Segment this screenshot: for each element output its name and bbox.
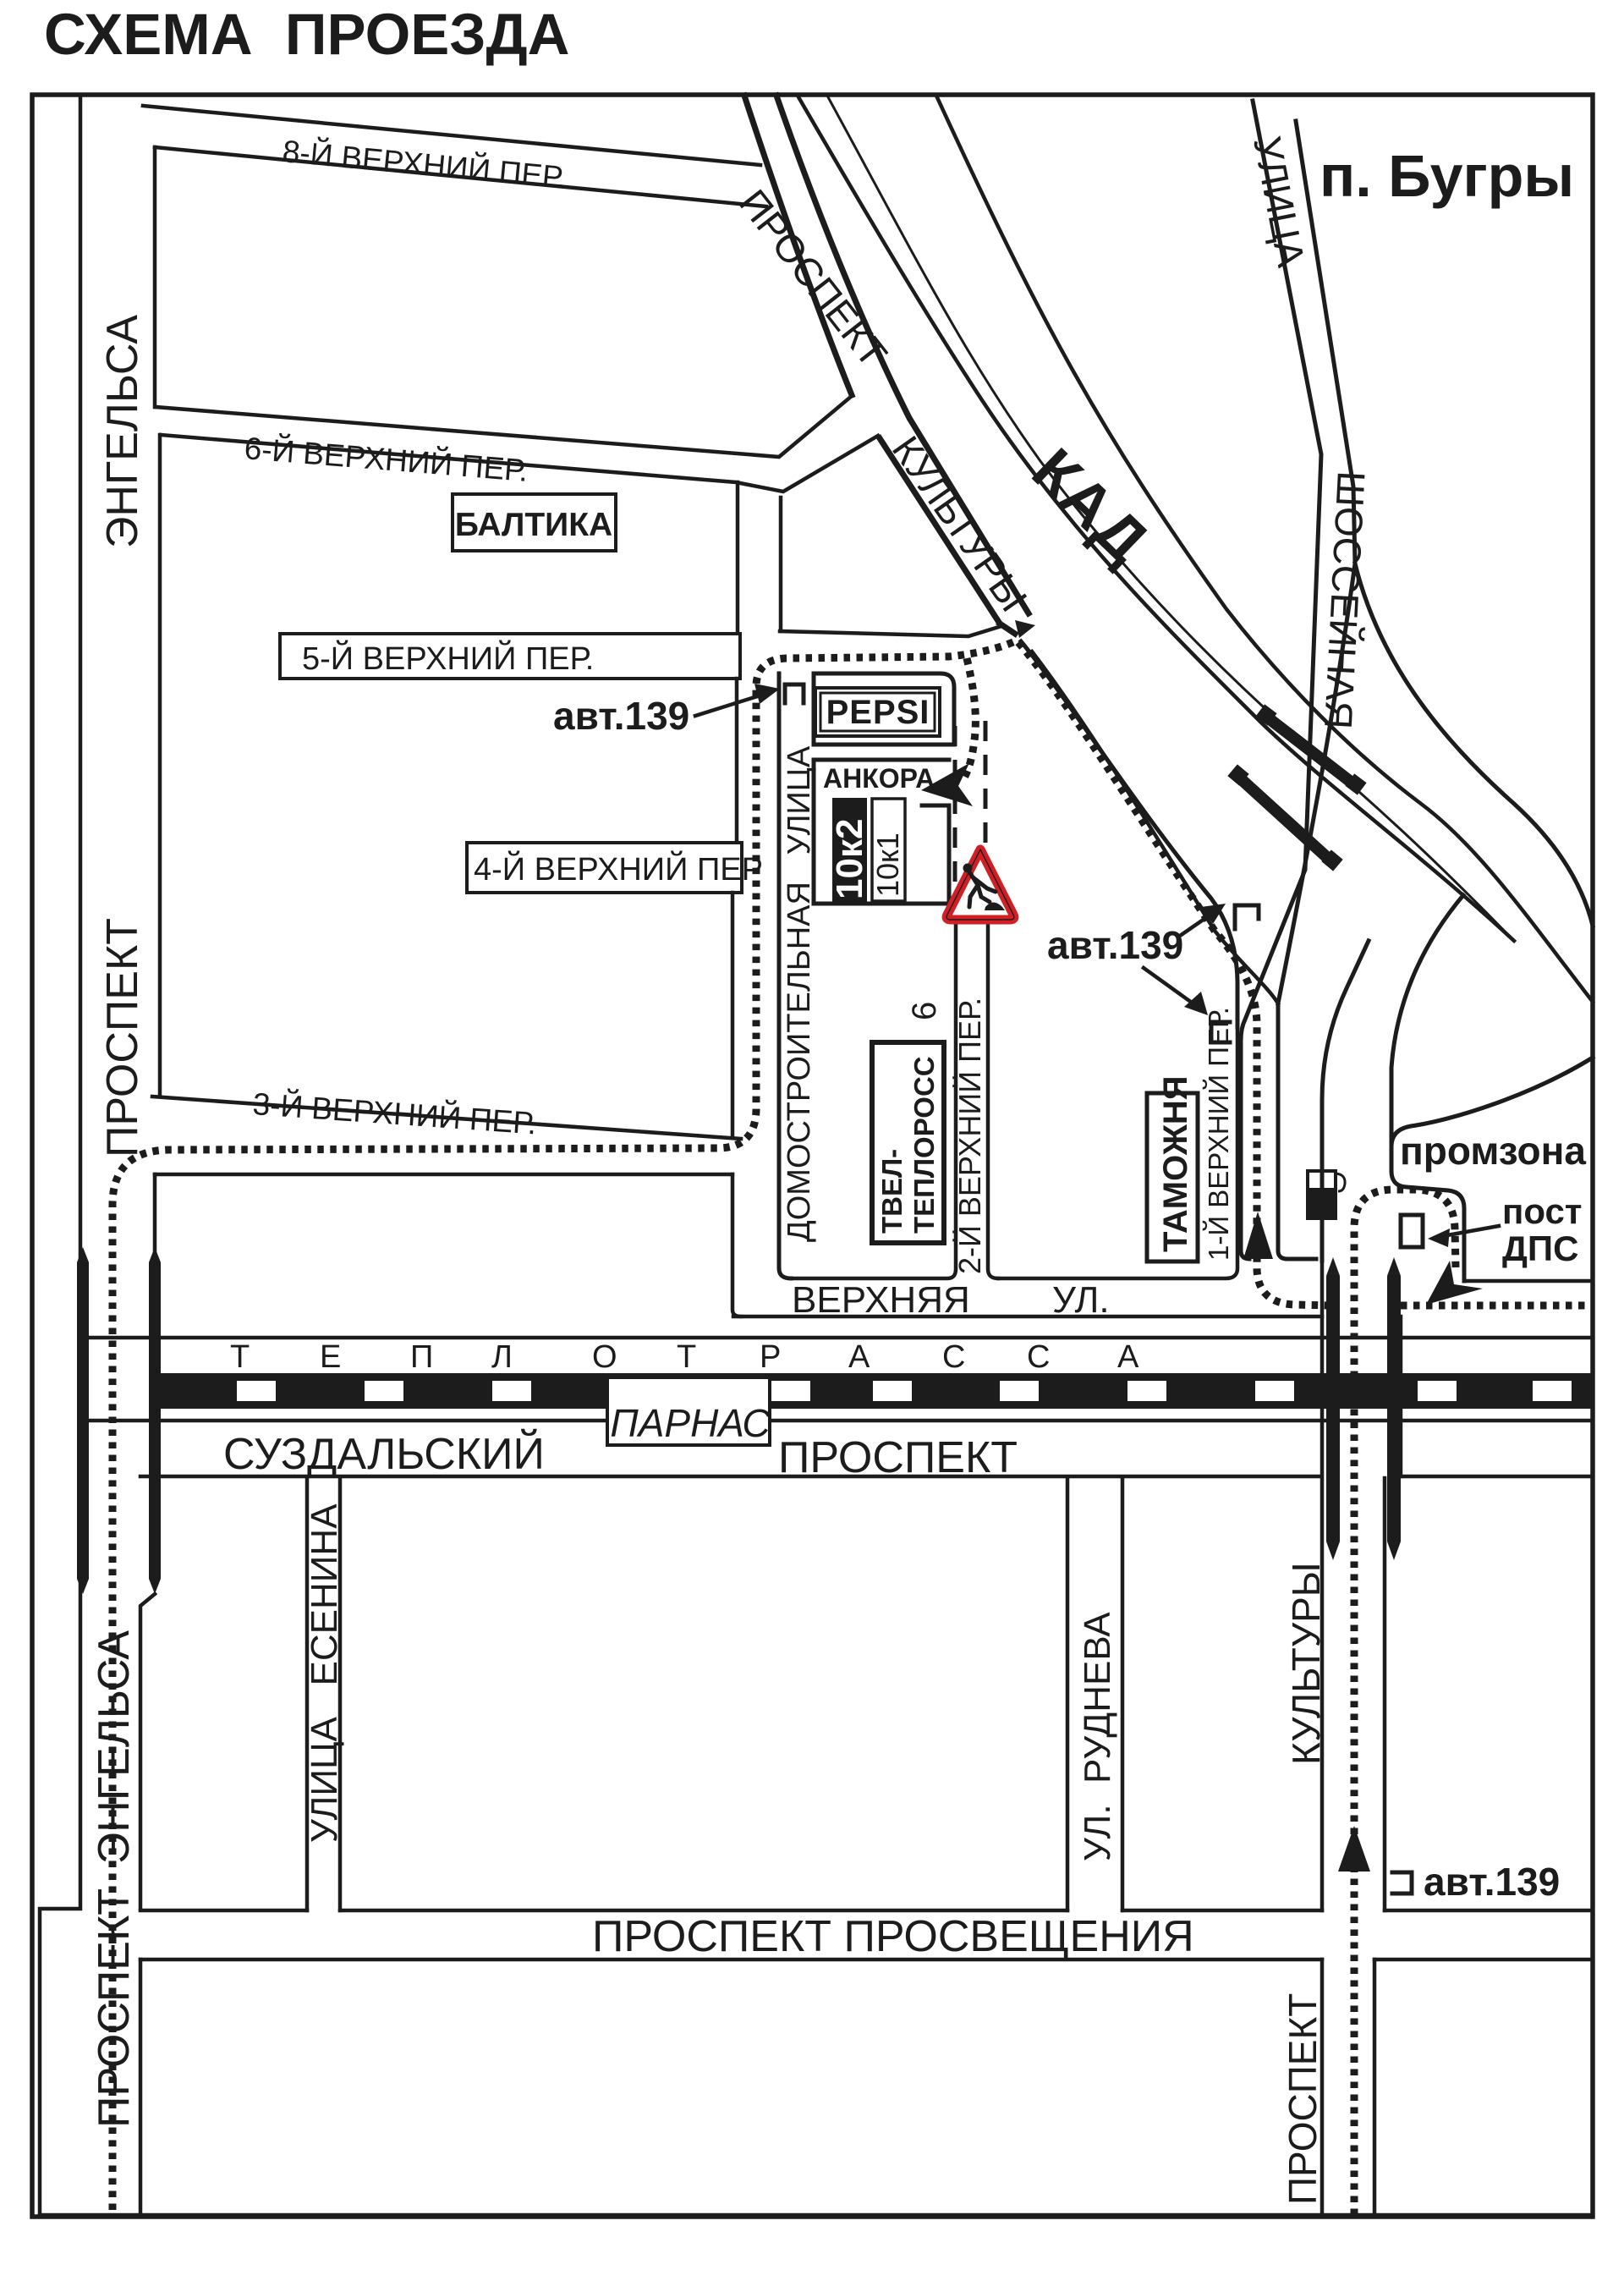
- svg-text:ТЕПЛОРОСС: ТЕПЛОРОСС: [908, 1056, 940, 1234]
- svg-text:п. Бугры: п. Бугры: [1319, 143, 1574, 209]
- svg-text:ЭНГЕЛЬСА: ЭНГЕЛЬСА: [98, 315, 147, 548]
- svg-text:Т: Т: [677, 1339, 696, 1375]
- svg-text:1-Й ВЕРХНИЙ ПЕР.: 1-Й ВЕРХНИЙ ПЕР.: [1203, 1007, 1234, 1261]
- svg-text:СУЗДАЛЬСКИЙ: СУЗДАЛЬСКИЙ: [223, 1429, 545, 1479]
- svg-text:КУЛЬТУРЫ: КУЛЬТУРЫ: [1284, 1562, 1328, 1765]
- svg-text:Т: Т: [230, 1339, 250, 1375]
- svg-text:УЛИЦА ЕСЕНИНА: УЛИЦА ЕСЕНИНА: [304, 1503, 345, 1843]
- svg-text:УЛ. РУДНЕВА: УЛ. РУДНЕВА: [1077, 1612, 1118, 1861]
- svg-text:О: О: [592, 1339, 617, 1375]
- svg-text:2-Й ВЕРХНИЙ ПЕР.: 2-Й ВЕРХНИЙ ПЕР.: [952, 998, 987, 1274]
- svg-text:ПРОСПЕКТ: ПРОСПЕКТ: [98, 918, 147, 1157]
- svg-text:пост: пост: [1502, 1191, 1582, 1231]
- svg-text:6: 6: [906, 1002, 943, 1020]
- svg-text:ТВЕЛ-: ТВЕЛ-: [876, 1149, 908, 1234]
- svg-text:БАЛТИКА: БАЛТИКА: [455, 507, 612, 543]
- svg-text:С: С: [942, 1339, 965, 1375]
- svg-text:5-Й ВЕРХНИЙ ПЕР.: 5-Й ВЕРХНИЙ ПЕР.: [302, 639, 594, 677]
- svg-text:АНКОРА: АНКОРА: [823, 763, 935, 794]
- svg-text:А: А: [1117, 1339, 1139, 1375]
- svg-text:Л: Л: [491, 1339, 513, 1375]
- svg-text:Е: Е: [320, 1339, 341, 1375]
- svg-text:ПРОСПЕКТ: ПРОСПЕКТ: [1281, 1993, 1325, 2205]
- svg-text:4-Й ВЕРХНИЙ ПЕР: 4-Й ВЕРХНИЙ ПЕР: [474, 849, 763, 888]
- svg-text:ДПС: ДПС: [1502, 1228, 1578, 1268]
- svg-text:С: С: [1027, 1339, 1050, 1375]
- svg-text:10к2: 10к2: [829, 819, 870, 899]
- svg-text:PEPSI: PEPSI: [826, 694, 930, 731]
- svg-text:ПАРНАС: ПАРНАС: [610, 1401, 771, 1445]
- svg-text:авт.139: авт.139: [1047, 923, 1183, 967]
- svg-text:ПРОСПЕКТ ПРОСВЕЩЕНИЯ: ПРОСПЕКТ ПРОСВЕЩЕНИЯ: [592, 1912, 1194, 1961]
- svg-text:П: П: [410, 1339, 433, 1375]
- svg-text:А: А: [848, 1339, 870, 1375]
- svg-text:10к1: 10к1: [870, 833, 905, 897]
- svg-text:СХЕМА ПРОЕЗДА: СХЕМА ПРОЕЗДА: [44, 2, 570, 67]
- svg-text:Р: Р: [760, 1339, 781, 1375]
- svg-text:ТАМОЖНЯ: ТАМОЖНЯ: [1157, 1076, 1194, 1253]
- svg-text:авт.139: авт.139: [553, 694, 689, 738]
- svg-text:авт.139: авт.139: [1424, 1860, 1560, 1904]
- svg-text:ВЕРХНЯЯ: ВЕРХНЯЯ: [792, 1279, 970, 1321]
- svg-text:промзона: промзона: [1400, 1129, 1586, 1173]
- svg-text:УЛ.: УЛ.: [1052, 1279, 1110, 1321]
